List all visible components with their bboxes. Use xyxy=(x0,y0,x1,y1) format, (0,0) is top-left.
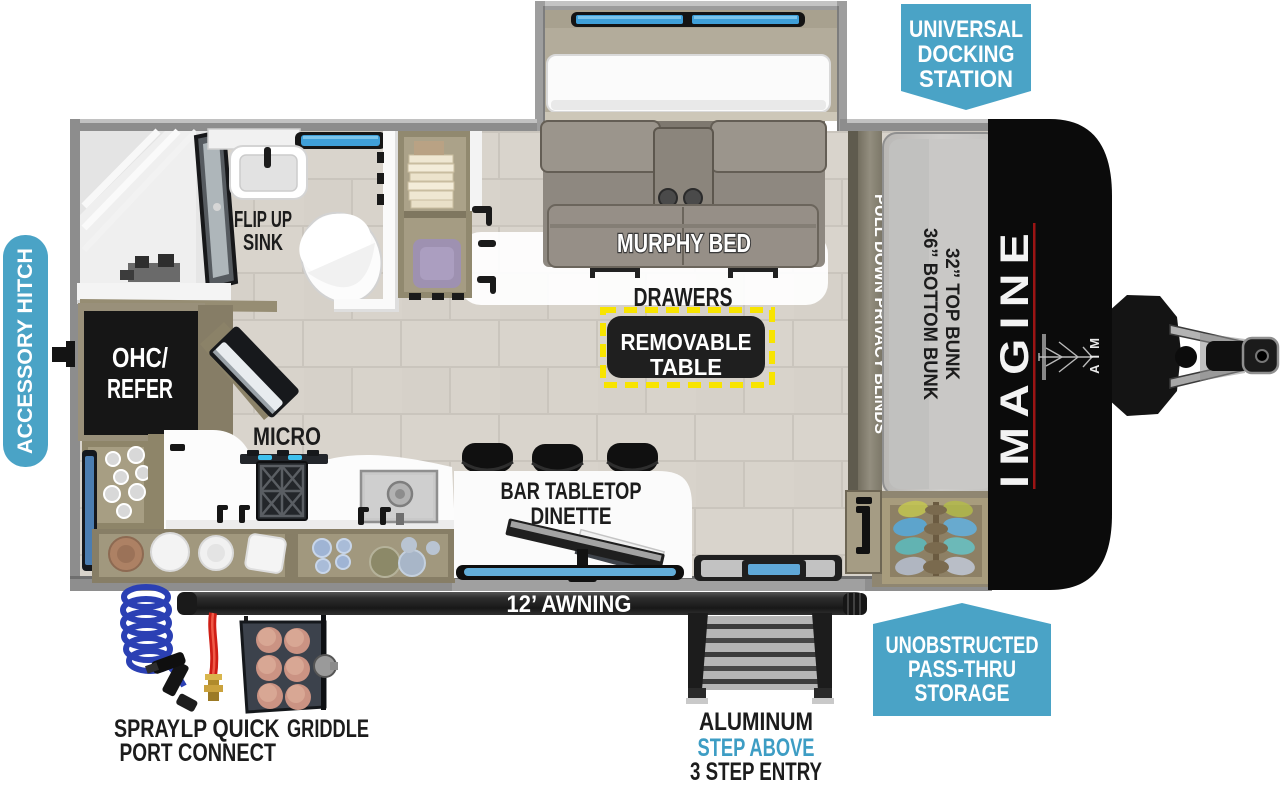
svg-text:UNIVERSAL: UNIVERSAL xyxy=(909,16,1023,43)
svg-text:IMAGINE: IMAGINE xyxy=(993,224,1037,488)
svg-text:OHC/: OHC/ xyxy=(112,342,168,373)
svg-text:SINK: SINK xyxy=(243,229,283,255)
svg-text:12’ AWNING: 12’ AWNING xyxy=(507,591,632,618)
svg-text:DINETTE: DINETTE xyxy=(531,503,612,530)
svg-text:DOCKING: DOCKING xyxy=(918,41,1015,68)
svg-text:36” BOTTOM BUNK: 36” BOTTOM BUNK xyxy=(919,228,940,400)
svg-text:32” TOP BUNK: 32” TOP BUNK xyxy=(941,248,962,380)
svg-text:STATION: STATION xyxy=(919,66,1013,93)
svg-text:REFER: REFER xyxy=(107,373,173,404)
svg-text:GRIDDLE: GRIDDLE xyxy=(287,715,369,743)
svg-text:TABLE: TABLE xyxy=(650,354,722,380)
svg-text:BAR TABLETOP: BAR TABLETOP xyxy=(501,478,642,505)
svg-text:ALUMINUM: ALUMINUM xyxy=(699,708,813,736)
svg-text:CONNECT: CONNECT xyxy=(178,739,276,767)
svg-text:MURPHY BED: MURPHY BED xyxy=(617,228,751,258)
svg-text:REMOVABLE: REMOVABLE xyxy=(621,329,752,355)
svg-text:STORAGE: STORAGE xyxy=(915,680,1010,707)
svg-text:ACCESSORY HITCH: ACCESSORY HITCH xyxy=(14,248,37,454)
svg-text:MICRO: MICRO xyxy=(253,423,321,451)
svg-text:3 STEP ENTRY: 3 STEP ENTRY xyxy=(690,758,822,782)
svg-text:UNOBSTRUCTED: UNOBSTRUCTED xyxy=(886,632,1039,659)
svg-text:AIM: AIM xyxy=(1087,332,1102,374)
svg-text:PASS-THRU: PASS-THRU xyxy=(908,656,1016,683)
svg-text:PORT: PORT xyxy=(120,739,173,767)
